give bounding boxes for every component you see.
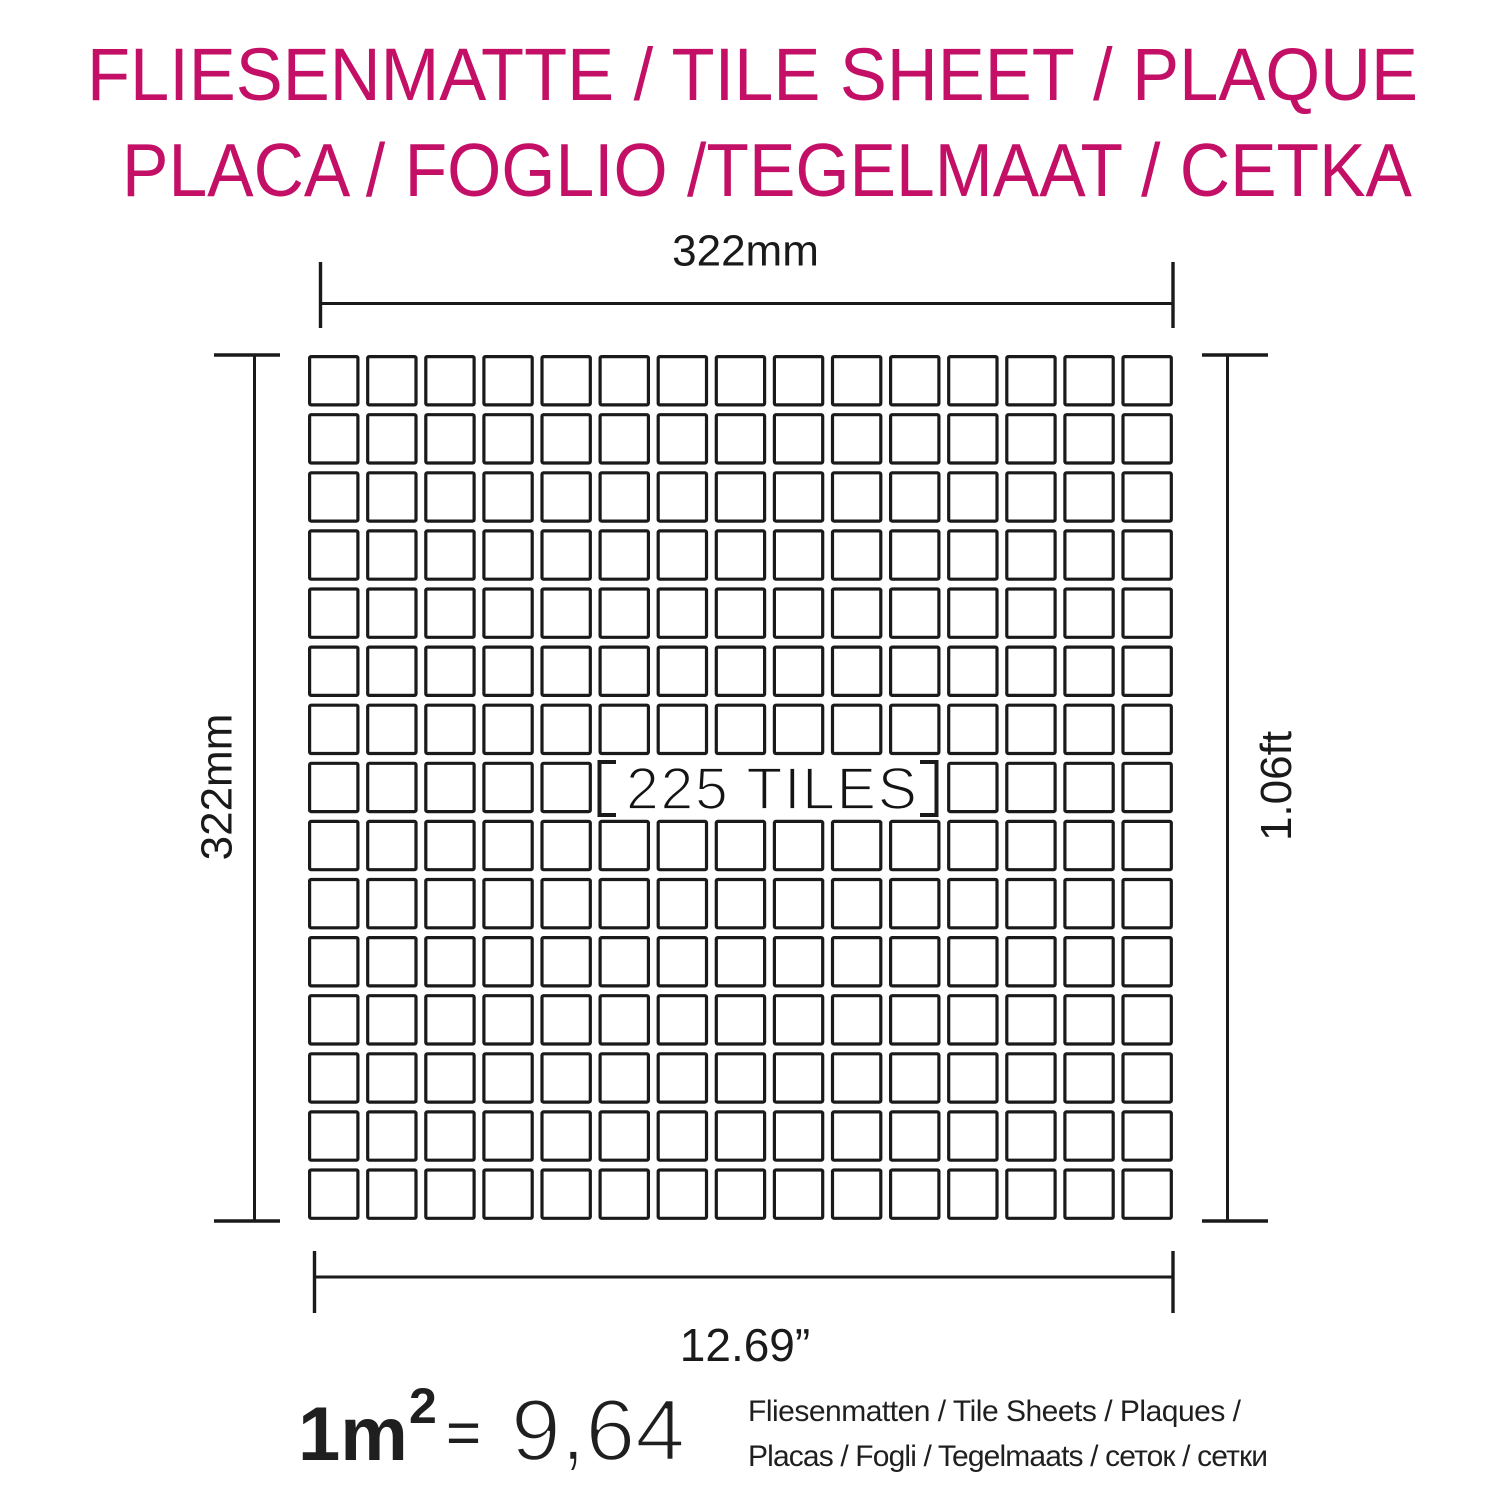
svg-text:Fliesenmatten / Tile Sheets /: Fliesenmatten / Tile Sheets / Plaques / bbox=[748, 1395, 1242, 1428]
svg-text:322mm: 322mm bbox=[672, 227, 819, 276]
svg-text:1.06ft: 1.06ft bbox=[1252, 731, 1301, 841]
svg-text:Placas / Fogli / Tegelmaats /: Placas / Fogli / Tegelmaats / сеток / се… bbox=[748, 1440, 1268, 1473]
svg-text:322mm: 322mm bbox=[193, 714, 242, 861]
svg-text:12.69”: 12.69” bbox=[680, 1319, 810, 1371]
svg-text:2: 2 bbox=[409, 1378, 437, 1434]
svg-text:PLACA / FOGLIO /TEGELMAAT / CE: PLACA / FOGLIO /TEGELMAAT / CETKA bbox=[122, 128, 1412, 212]
svg-text:FLIESENMATTE / TILE SHEET / PL: FLIESENMATTE / TILE SHEET / PLAQUE bbox=[87, 33, 1418, 116]
svg-text:9,64: 9,64 bbox=[511, 1382, 685, 1479]
svg-text:=: = bbox=[446, 1399, 481, 1466]
svg-text:225 TILES: 225 TILES bbox=[626, 756, 917, 822]
svg-text:1m: 1m bbox=[298, 1392, 408, 1477]
